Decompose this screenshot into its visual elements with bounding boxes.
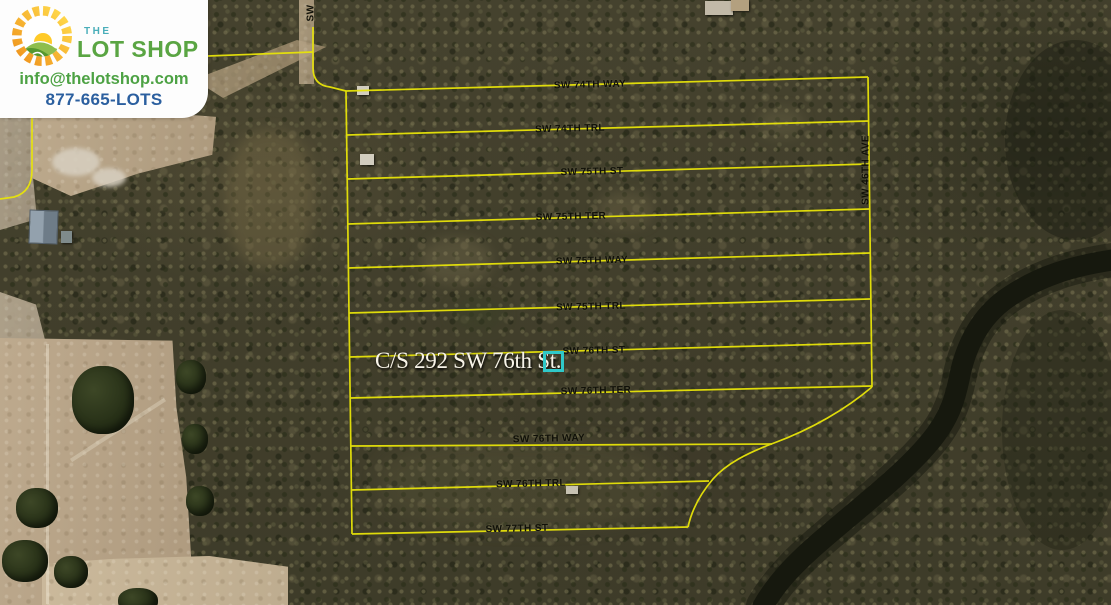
road-curve-west — [0, 117, 32, 199]
street-label-sw-76th-way: SW 76TH WAY — [513, 433, 586, 446]
sun-hills-logo-icon — [10, 4, 74, 68]
contact-phone: 877-665-LOTS — [0, 90, 208, 110]
subject-lot-highlight-box — [543, 351, 564, 372]
lot-line-sw-75th-ter — [348, 209, 869, 224]
plat-east-boundary-sw-46th-ave — [868, 77, 872, 387]
street-label-sw-46th-ave: SW 46TH AVE — [861, 135, 872, 205]
contact-email: info@thelotshop.com — [0, 70, 208, 89]
aerial-parcel-map: SW 74TH WAY SW 74TH TRL SW 75TH ST SW 75… — [0, 0, 1111, 605]
lot-shop-logo-card: THE LOT SHOP info@thelotshop.com 877-665… — [0, 0, 208, 118]
street-label-sw-76th-ter: SW 76TH TER — [561, 385, 632, 398]
street-label-sw-76th-trl: SW 76TH TRL — [496, 478, 566, 491]
street-label-sw-partial: SW — [306, 5, 317, 22]
street-label-sw-74th-trl: SW 74TH TRL — [535, 123, 605, 136]
street-label-sw-76th-st: SW 76TH ST — [562, 345, 625, 358]
lot-line-sw-76th-way — [350, 444, 772, 446]
lot-line-sw-74th-trl — [347, 121, 869, 135]
street-label-sw-77th-st: SW 77TH ST — [485, 523, 548, 536]
dark-forest-shadow — [1002, 310, 1111, 550]
subject-lot-label: C/S 292 SW 76th St. — [375, 348, 561, 374]
street-label-sw-75th-st: SW 75TH ST — [560, 166, 623, 179]
street-label-sw-75th-trl: SW 75TH TRL — [556, 301, 626, 314]
street-label-sw-75th-ter: SW 75TH TER — [536, 211, 607, 224]
logo-name-text: LOT SHOP — [77, 36, 199, 63]
street-label-sw-75th-way: SW 75TH WAY — [556, 255, 629, 268]
street-label-sw-74th-way: SW 74TH WAY — [554, 79, 627, 92]
road-curve-line — [313, 27, 346, 91]
dark-forest-shadow — [1005, 40, 1111, 240]
road-side-line — [208, 52, 313, 56]
